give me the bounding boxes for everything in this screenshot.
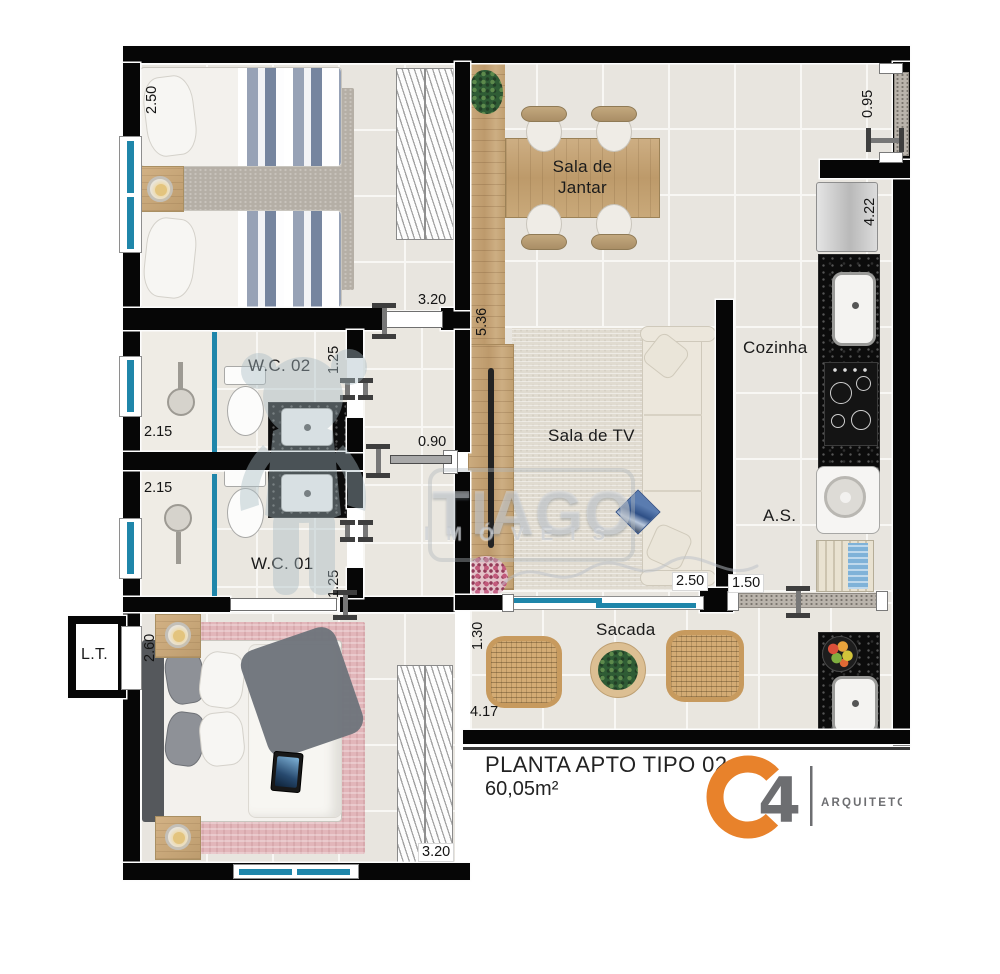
- door-ibeam-icon: [340, 520, 355, 542]
- balcony-chair: [666, 630, 744, 702]
- wall-balcony-parapet: [463, 730, 910, 744]
- tablet-icon: [270, 751, 303, 793]
- bed-headboard: [142, 640, 164, 822]
- striped-duvet: [238, 68, 341, 166]
- lamp-bulb-icon: [173, 832, 185, 844]
- label-wc2: W.C. 02: [248, 356, 311, 376]
- burner-icon: [856, 376, 871, 391]
- door-jamb: [727, 591, 739, 611]
- label-tv-room: Sala de TV: [548, 426, 635, 446]
- window-glass: [297, 869, 350, 875]
- door-ibeam-icon: [340, 378, 355, 400]
- faucet-icon: [304, 424, 311, 431]
- dim-bedroom1-width: 3.20: [418, 292, 446, 308]
- shower-glass-wc1: [212, 474, 217, 596]
- hall-door-leaf: [390, 455, 452, 464]
- label-dining-line1: Sala de: [553, 157, 613, 176]
- flower-vase-icon: [464, 556, 508, 598]
- wall-wc2-right-upper: [347, 330, 363, 358]
- window-glass: [127, 141, 134, 193]
- wall-living-kitchen: [716, 300, 733, 590]
- burner-icon: [851, 410, 871, 430]
- shower-glass-wc2: [212, 332, 217, 452]
- dim-bedroom2-width: 3.20: [418, 843, 454, 862]
- dim-wc1-depth: 1.25: [326, 552, 342, 598]
- sofa-cushion-line: [644, 490, 702, 492]
- shower-head-icon: [164, 504, 192, 532]
- cooktop: [824, 362, 878, 446]
- door-ibeam-icon: [372, 303, 396, 339]
- wall-bedroom2-top-right: [340, 597, 455, 612]
- toilet-wc1: [224, 468, 266, 487]
- door-ibeam-icon: [786, 586, 810, 618]
- wall-hall-living-upper: [455, 330, 470, 452]
- label-lt: L.T.: [81, 646, 108, 664]
- burner-icon: [831, 414, 845, 428]
- lt-door: [121, 626, 142, 690]
- sliding-door-pane: [596, 603, 696, 608]
- dim-wc2-depth: 1.25: [326, 328, 342, 374]
- towel-icon: [848, 543, 868, 589]
- label-balcony: Sacada: [596, 620, 655, 640]
- lamp-bulb-icon: [173, 630, 185, 642]
- wardrobe-bedroom1: [396, 68, 454, 240]
- door-jamb: [502, 594, 514, 612]
- door-ibeam-icon: [358, 378, 373, 400]
- floor-plan: Sala de Jantar: [0, 0, 1000, 974]
- label-dining-room: Sala de Jantar: [515, 156, 650, 198]
- dim-balcony-width: 4.17: [470, 704, 498, 720]
- shower-arm-icon: [176, 532, 181, 564]
- dim-dining-length: 5.36: [474, 288, 490, 336]
- logo-number: 4: [758, 764, 801, 837]
- label-service-area: A.S.: [763, 506, 796, 526]
- dining-chair: [521, 234, 567, 250]
- tv-icon: [488, 368, 494, 548]
- striped-duvet: [238, 211, 341, 307]
- balcony-plant-icon: [598, 650, 638, 690]
- burner-icon: [830, 382, 852, 404]
- dim-kitchen-length: 4.22: [862, 180, 878, 226]
- logo-caption: ARQUITETOS: [821, 797, 902, 809]
- sofa-cushion-line: [644, 414, 702, 416]
- window-glass: [239, 869, 292, 875]
- window-glass: [127, 197, 134, 249]
- dim-tv-door-width: 2.50: [672, 572, 708, 591]
- dim-bedroom2-depth: 2.60: [142, 614, 158, 662]
- wall-bedroom1-bottom: [123, 308, 385, 330]
- wall-dining-left: [455, 62, 470, 310]
- c4-arquitetos-logo: 4 ARQUITETOS: [706, 750, 902, 848]
- faucet-icon: [852, 302, 859, 309]
- lamp-bulb-icon: [155, 184, 167, 196]
- dim-wc2-width: 2.15: [144, 424, 172, 440]
- sliding-door-pane: [514, 598, 602, 603]
- dim-hall-width: 0.90: [418, 434, 446, 450]
- wall-top: [123, 46, 910, 63]
- toilet-bowl-icon: [227, 386, 264, 436]
- wall-bedroom2-top-left: [123, 597, 230, 612]
- wall-wc2-right-lower: [347, 418, 363, 452]
- fruit-bowl-icon: [822, 636, 858, 672]
- label-wc1: W.C. 01: [251, 554, 314, 574]
- label-kitchen: Cozinha: [743, 338, 807, 358]
- door-ibeam-icon: [358, 520, 373, 542]
- faucet-icon: [304, 490, 311, 497]
- bed-pillow: [197, 710, 246, 768]
- door-jamb: [879, 152, 903, 163]
- wardrobe-bedroom2: [397, 665, 453, 863]
- sofa-backrest: [700, 332, 716, 580]
- door-ibeam-icon: [366, 444, 390, 478]
- dining-chair: [521, 106, 567, 122]
- tablet-screen-icon: [275, 756, 300, 788]
- cooktop-controls-icon: [830, 368, 870, 372]
- door-jamb: [879, 63, 903, 74]
- dim-bedroom1-depth: 2.50: [144, 66, 160, 114]
- door-jamb: [876, 591, 888, 611]
- door-ibeam-icon: [866, 128, 904, 152]
- dim-service-door-width: 1.50: [728, 574, 764, 593]
- washer-drum-center-icon: [840, 492, 851, 503]
- plan-area: 60,05m²: [485, 778, 558, 801]
- wall-hall-living-lower: [455, 472, 470, 598]
- kitchen-sink: [832, 272, 876, 346]
- plant-icon: [470, 70, 503, 114]
- dining-chair: [591, 234, 637, 250]
- balcony-chair: [486, 636, 562, 708]
- faucet-icon: [852, 700, 859, 707]
- toilet-bowl-icon: [227, 488, 264, 538]
- dim-wc1-width: 2.15: [144, 480, 172, 496]
- wall-wc1-right-upper: [347, 472, 363, 508]
- dining-chair: [591, 106, 637, 122]
- sofa-armrest: [640, 326, 716, 342]
- bedroom2-door-leaf: [230, 598, 337, 611]
- wall-wc-divider: [123, 452, 363, 470]
- logo-divider: [810, 766, 813, 826]
- dim-entry-width: 0.95: [860, 72, 876, 118]
- label-dining-line2: Jantar: [558, 178, 607, 197]
- wall-block: [441, 308, 470, 330]
- dim-balcony-depth: 1.30: [470, 604, 486, 650]
- shower-head-icon: [167, 388, 195, 416]
- plan-title: PLANTA APTO TIPO 02: [485, 752, 727, 778]
- window-glass: [127, 360, 134, 412]
- window-glass: [127, 522, 134, 574]
